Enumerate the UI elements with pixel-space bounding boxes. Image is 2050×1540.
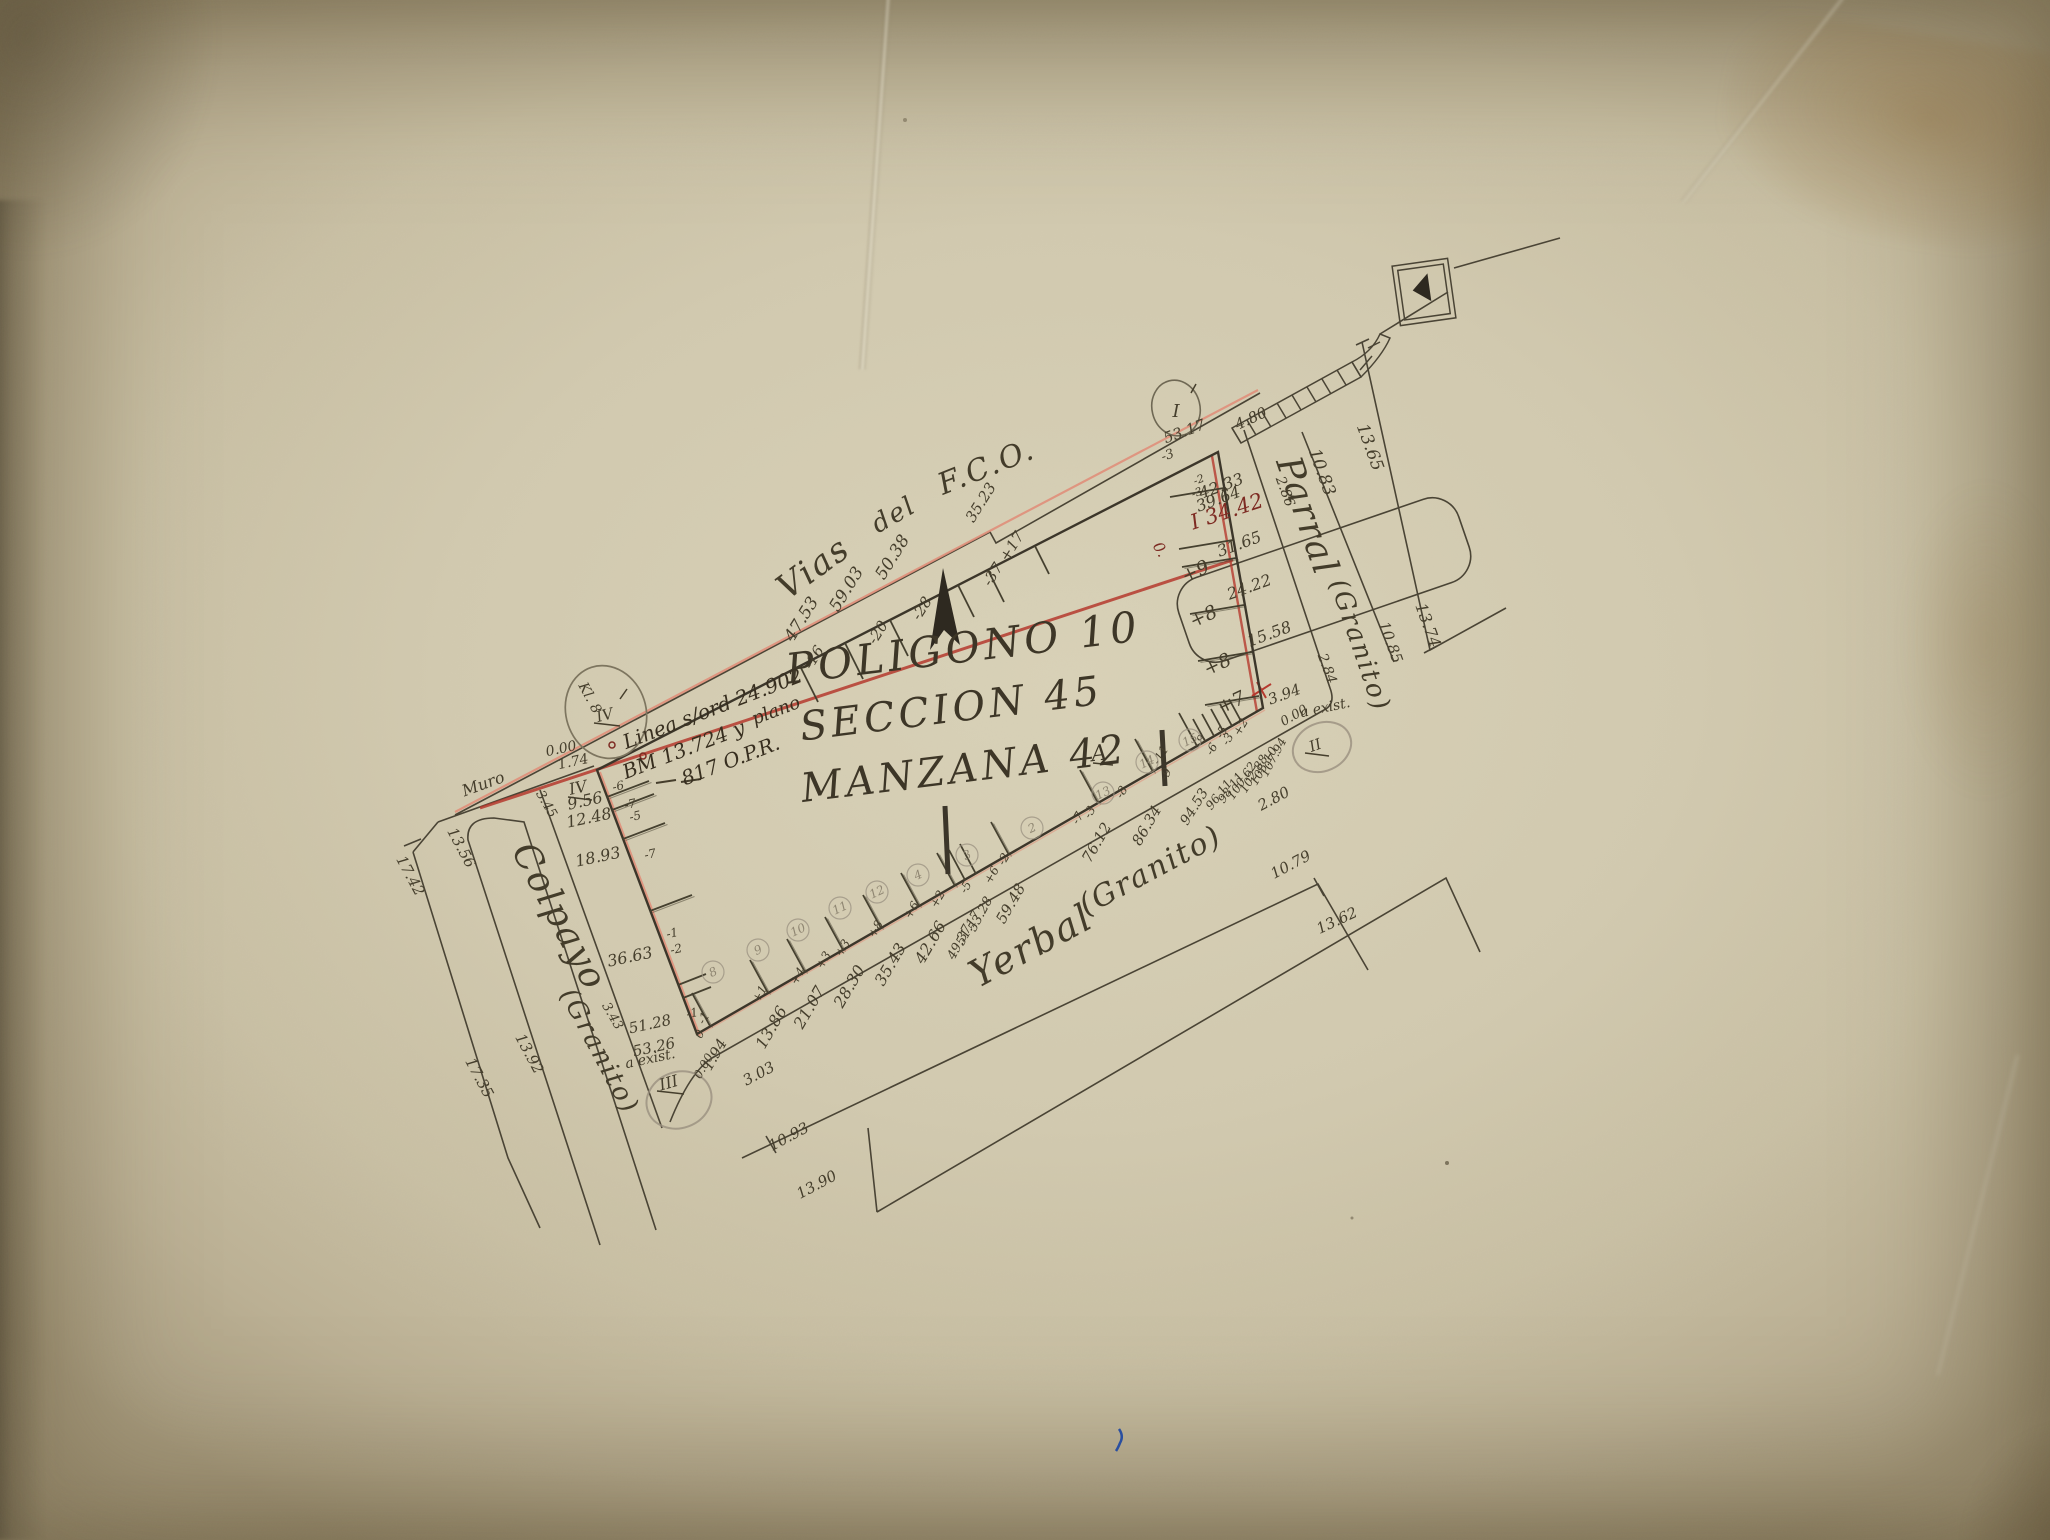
plan-title-superscript: A [1088,740,1113,767]
corner-marker-i: I [1171,401,1180,422]
speck [1351,1217,1354,1220]
scanned-survey-sheet: POLIGONO 10 SECCION 45 MANZANA 42 A Vias… [0,0,2050,1540]
speck [1445,1161,1449,1165]
speck [903,118,907,122]
survey-drawing: POLIGONO 10 SECCION 45 MANZANA 42 A Vias… [0,0,2050,1540]
